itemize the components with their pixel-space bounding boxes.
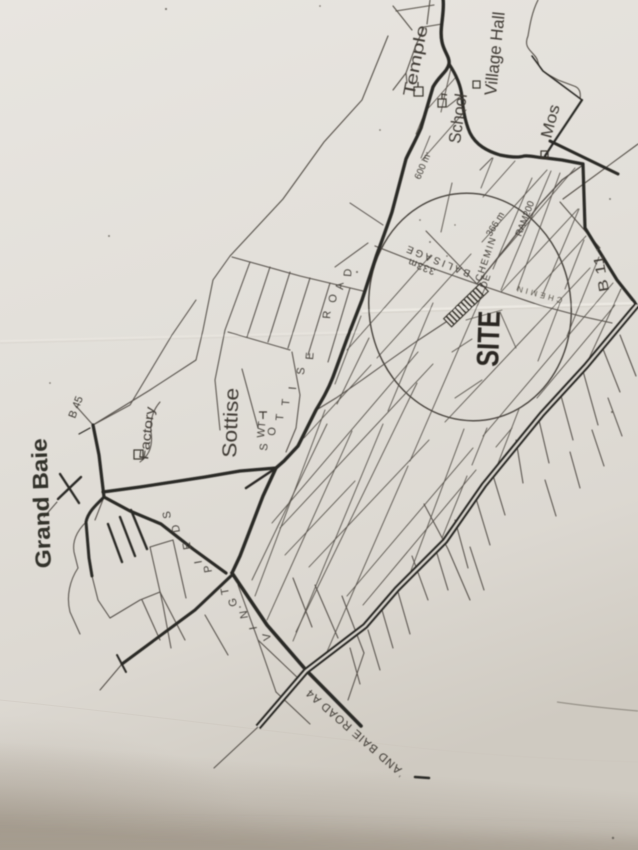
svg-text:Sottise: Sottise [219, 387, 243, 458]
svg-text:T: T [280, 398, 293, 406]
svg-text:S: S [258, 443, 271, 451]
svg-text:E: E [304, 352, 317, 360]
svg-text:R: R [321, 310, 334, 319]
svg-text:O: O [266, 426, 279, 436]
svg-text:D: D [342, 268, 355, 277]
svg-text:S: S [295, 367, 308, 375]
svg-text:Grand Baie: Grand Baie [26, 438, 56, 569]
svg-text:SITE: SITE [470, 310, 507, 367]
svg-text:O: O [327, 293, 340, 303]
svg-text:T: T [274, 413, 287, 421]
